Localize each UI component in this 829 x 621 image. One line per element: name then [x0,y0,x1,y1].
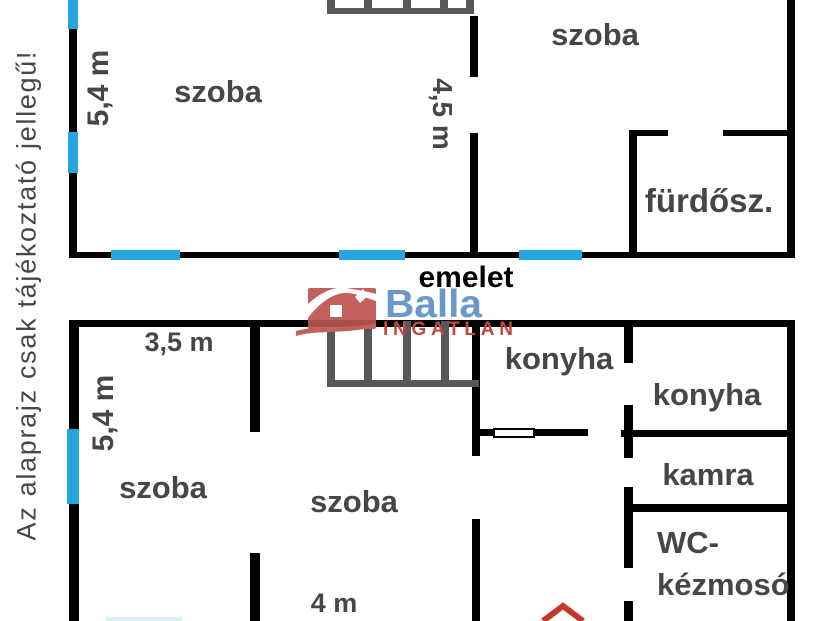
svg-text:INGATLAN: INGATLAN [383,319,513,340]
